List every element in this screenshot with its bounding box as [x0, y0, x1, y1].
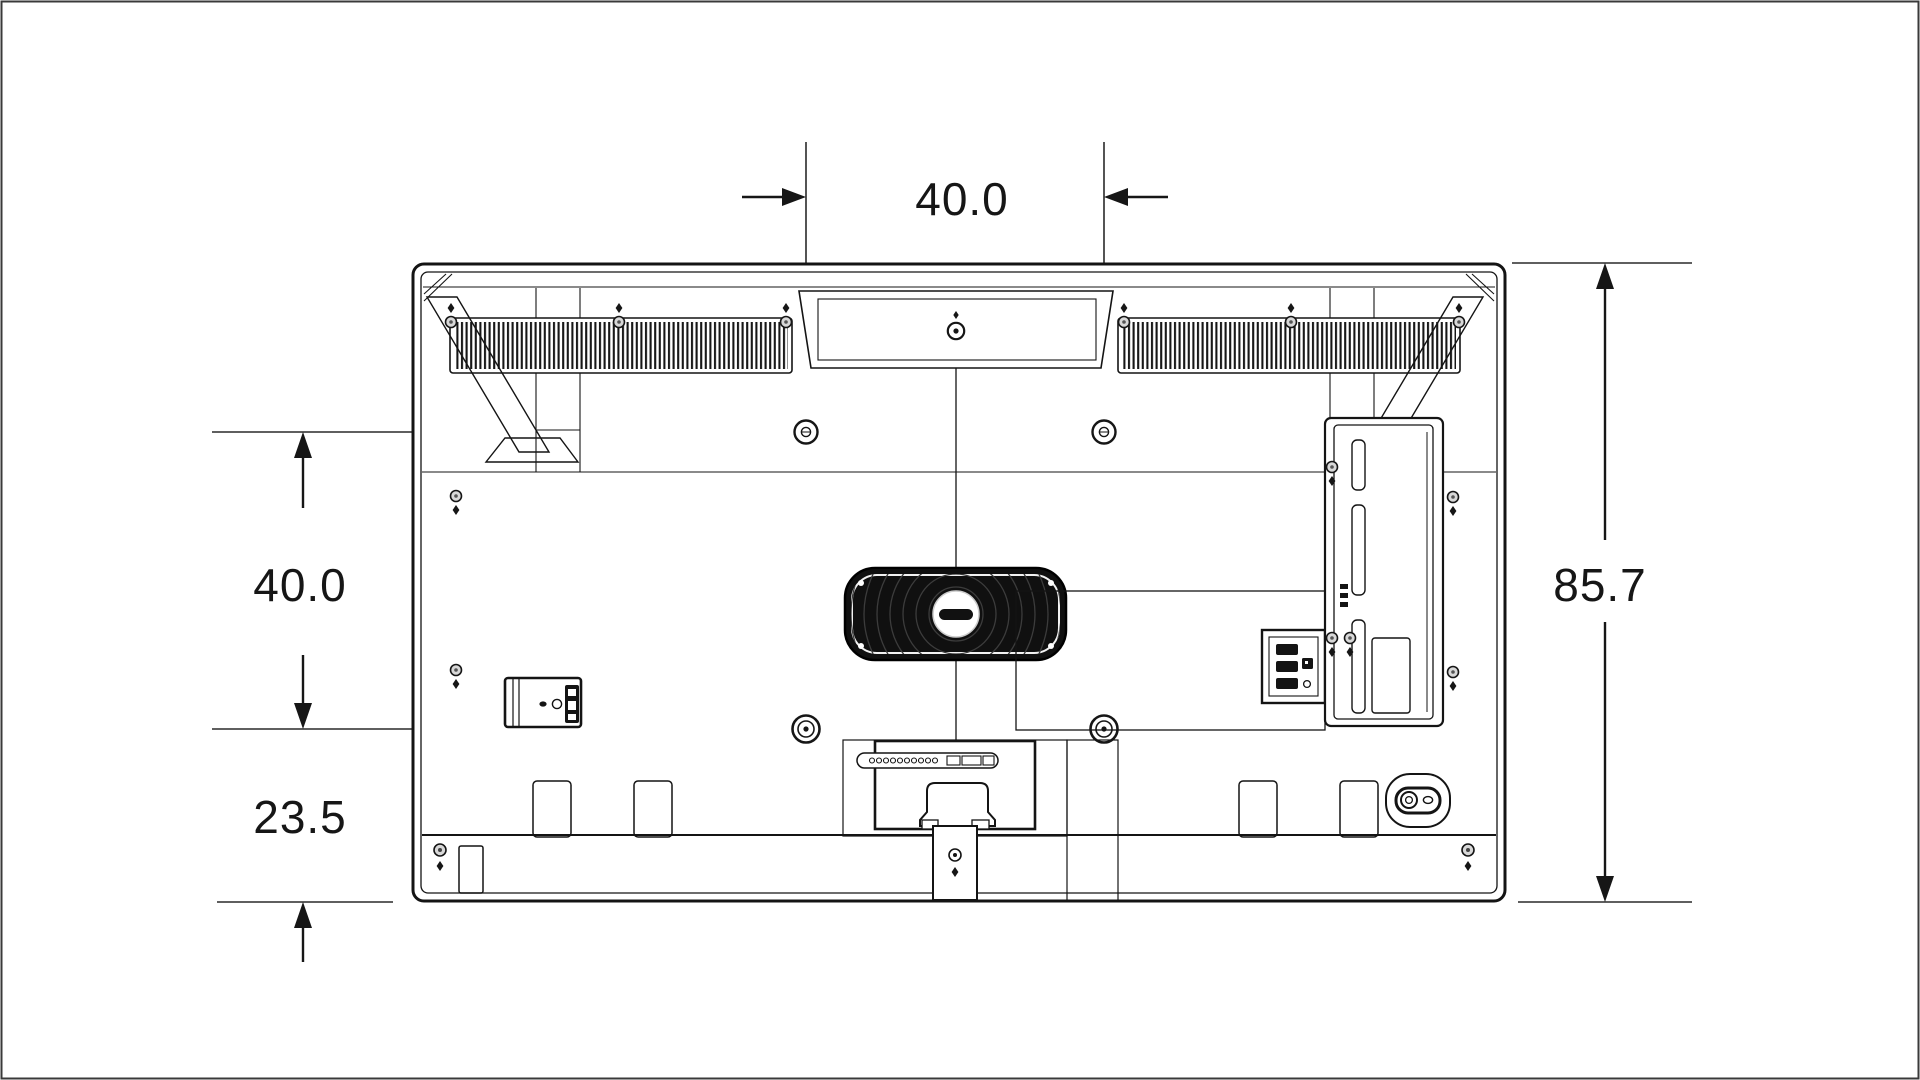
rear-connector-panel	[1262, 630, 1325, 703]
ir-dot	[539, 701, 546, 706]
stand-connector-strip	[857, 753, 998, 768]
vesa-hole-bottom-left	[793, 716, 820, 743]
vesa-hole-bottom-right	[1091, 716, 1118, 743]
side-connector-box	[505, 678, 581, 727]
diagram-page: 40.0 40.0 23.5 85.7	[0, 0, 1920, 1080]
tv-rear-dimension-drawing: 40.0 40.0 23.5 85.7	[0, 0, 1920, 1080]
dim-label-vesa-width: 40.0	[915, 173, 1009, 225]
dim-label-bottom-offset: 23.5	[253, 791, 347, 843]
slot-ticks	[1340, 584, 1348, 607]
hdmi-port-3	[1276, 678, 1298, 689]
hdmi-port-2	[1276, 661, 1298, 672]
vesa-hole-top-left	[795, 421, 818, 444]
terminal-cover	[1325, 418, 1443, 726]
dim-label-vesa-height: 40.0	[253, 559, 347, 611]
stand-column	[933, 826, 977, 900]
hdmi-port-1	[1276, 644, 1298, 655]
speaker-center-badge	[939, 609, 973, 620]
vesa-hole-top-right	[1093, 421, 1116, 444]
dim-label-total-height: 85.7	[1553, 559, 1647, 611]
antenna-terminal	[1386, 774, 1450, 827]
